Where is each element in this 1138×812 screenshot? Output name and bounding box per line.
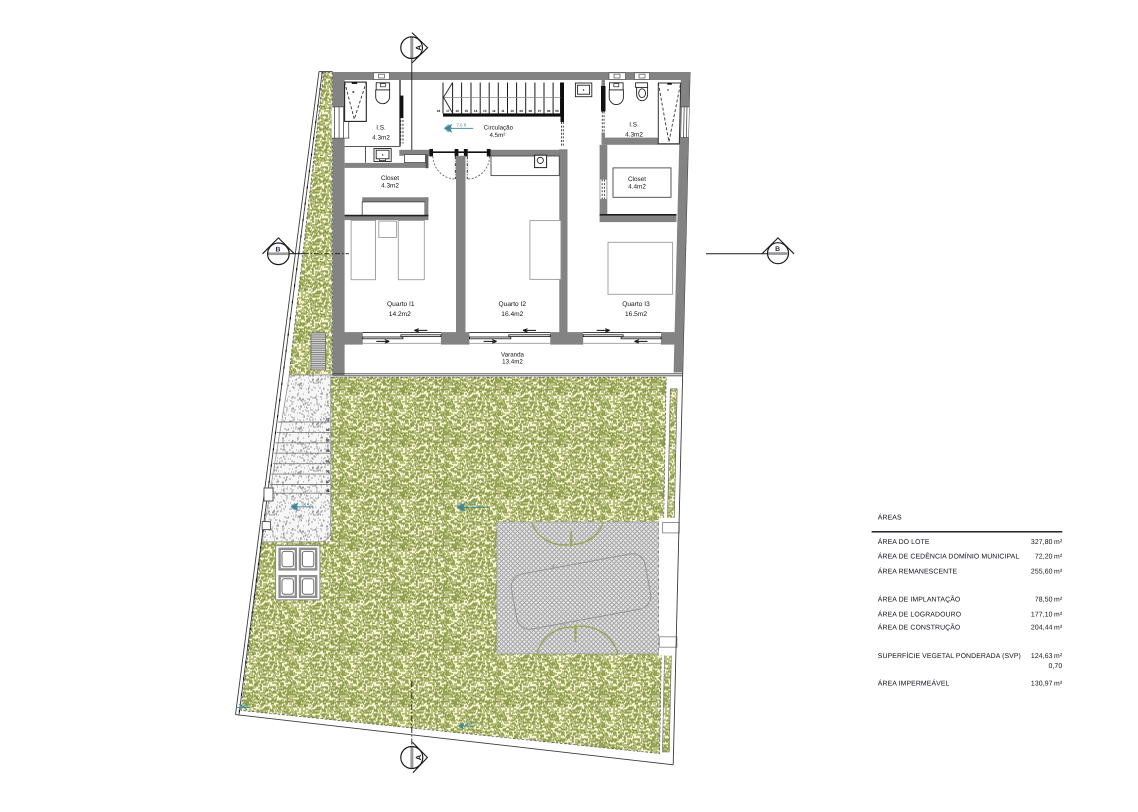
svg-text:Quarto I1: Quarto I1 [387,301,415,308]
svg-text:7.6 ft: 7.6 ft [457,123,467,128]
svg-text:07: 07 [538,109,542,113]
svg-text:0,70: 0,70 [1048,663,1062,670]
svg-text:ÁREA IMPERMEÁVEL: ÁREA IMPERMEÁVEL [878,679,950,687]
svg-text:14.2m2: 14.2m2 [389,311,411,318]
svg-text:08: 08 [326,489,330,493]
svg-text:13: 13 [483,109,487,113]
svg-text:07: 07 [326,480,330,484]
svg-text:ÁREA DE CONSTRUÇÃO: ÁREA DE CONSTRUÇÃO [878,623,961,632]
svg-text:ÁREA REMANESCENTE: ÁREA REMANESCENTE [878,567,958,575]
svg-text:17: 17 [446,109,450,113]
svg-text:13.4m2: 13.4m2 [502,359,523,366]
svg-text:15: 15 [465,109,469,113]
svg-text:ÁREA DE IMPLANTAÇÃO: ÁREA DE IMPLANTAÇÃO [878,595,961,604]
svg-text:16: 16 [455,109,459,113]
svg-text:4.3m2: 4.3m2 [372,135,390,142]
svg-text:4.4m2: 4.4m2 [628,184,646,191]
svg-text:12: 12 [492,109,496,113]
svg-text:06: 06 [547,109,551,113]
svg-text:Closet: Closet [628,176,646,183]
svg-text:A: A [414,44,423,50]
svg-text:1.14: 1.14 [301,501,310,506]
svg-text:I.S.: I.S. [629,122,639,129]
svg-text:Quarto I3: Quarto I3 [622,301,650,308]
svg-text:18: 18 [437,109,441,113]
svg-text:01: 01 [326,418,330,422]
svg-text:16.5m2: 16.5m2 [625,311,647,318]
svg-text:0.00: 0.00 [465,721,474,726]
svg-text:Quarto I2: Quarto I2 [499,301,527,308]
svg-text:327,80 m²: 327,80 m² [1031,539,1063,546]
svg-text:0.5: 0.5 [470,502,477,507]
svg-text:09: 09 [519,109,523,113]
svg-text:SUPERFÍCIE VEGETAL PONDERADA (: SUPERFÍCIE VEGETAL PONDERADA (SVP) [878,652,1021,660]
svg-text:ÁREA DE CEDÊNCIA DOMÍNIO MUNIC: ÁREA DE CEDÊNCIA DOMÍNIO MUNICIPAL [878,552,1020,561]
svg-text:177,10 m²: 177,10 m² [1031,611,1063,618]
svg-text:02: 02 [326,428,330,432]
svg-text:ÁREA DO LOTE: ÁREA DO LOTE [878,538,930,546]
svg-text:Varanda: Varanda [501,352,524,359]
svg-text:204,44 m²: 204,44 m² [1031,625,1063,632]
svg-text:ÁREAS: ÁREAS [878,514,902,522]
svg-text:14: 14 [474,109,478,113]
svg-text:B: B [775,246,780,253]
svg-text:04: 04 [326,449,330,453]
svg-text:05: 05 [326,459,330,463]
svg-text:Circulação: Circulação [484,125,514,132]
svg-text:4.5m²: 4.5m² [489,132,505,139]
svg-text:72,20 m²: 72,20 m² [1035,554,1063,561]
svg-text:255,60 m²: 255,60 m² [1031,568,1063,575]
svg-text:I.S.: I.S. [376,125,386,132]
svg-text:03: 03 [326,438,330,442]
svg-text:130,97 m²: 130,97 m² [1031,680,1063,687]
svg-text:B: B [276,247,281,254]
svg-text:4.3m2: 4.3m2 [381,183,399,190]
svg-text:124,63 m²: 124,63 m² [1031,653,1063,660]
svg-text:ÁREA DE LOGRADOURO: ÁREA DE LOGRADOURO [878,610,962,618]
svg-text:A: A [414,754,423,760]
svg-text:08: 08 [529,109,533,113]
svg-text:11: 11 [501,109,505,113]
svg-text:4.3m2: 4.3m2 [625,132,643,139]
svg-text:16.4m2: 16.4m2 [501,311,523,318]
svg-text:78,50 m²: 78,50 m² [1035,597,1063,604]
svg-text:05: 05 [555,109,559,113]
svg-text:10: 10 [510,109,514,113]
svg-text:06: 06 [326,470,330,474]
svg-text:Closet: Closet [381,175,399,182]
